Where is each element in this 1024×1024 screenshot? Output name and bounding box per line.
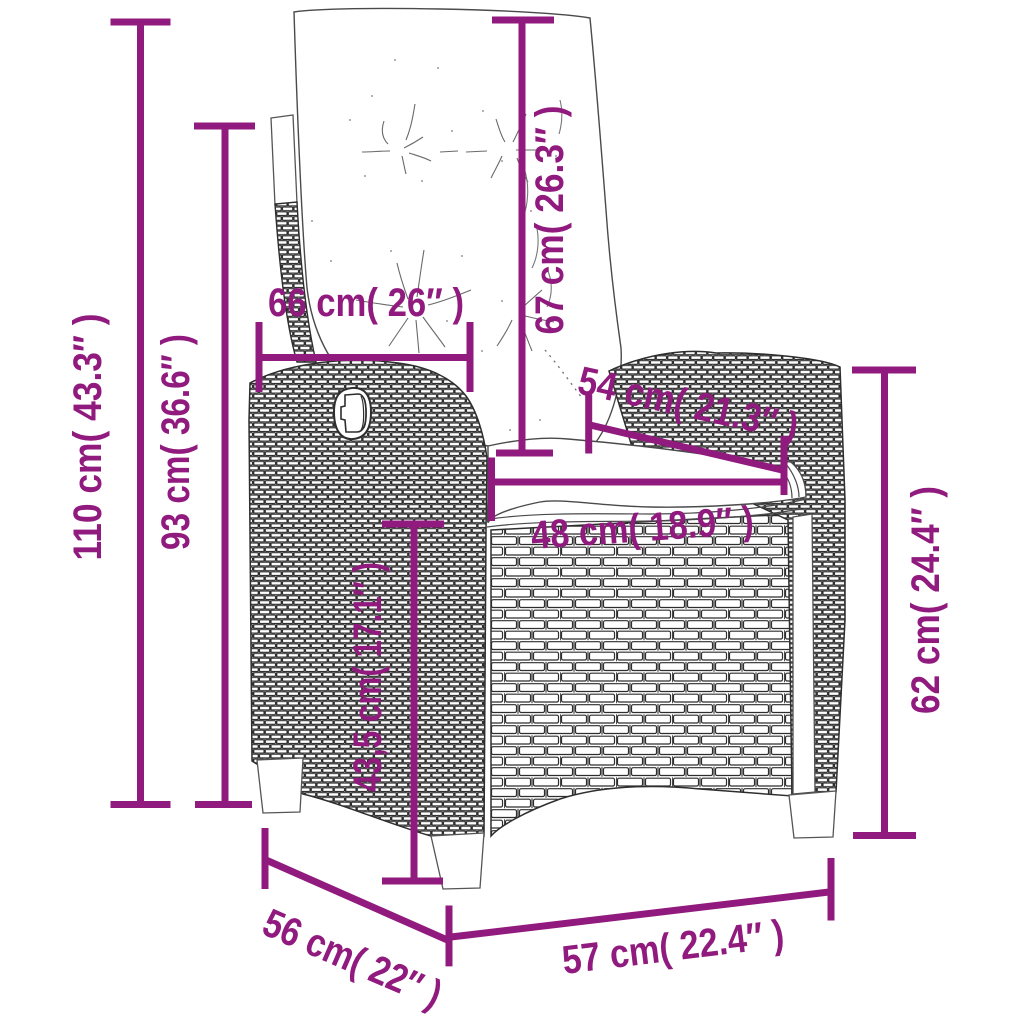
svg-text:43,5 cm( 17.1″ ): 43,5 cm( 17.1″ ): [346, 562, 390, 792]
svg-text:93 cm( 36.6″ ): 93 cm( 36.6″ ): [154, 334, 198, 550]
svg-text:110 cm( 43.3″ ): 110 cm( 43.3″ ): [66, 314, 110, 561]
svg-text:62 cm( 24.4″ ): 62 cm( 24.4″ ): [904, 486, 948, 714]
svg-text:67 cm( 26.3″ ): 67 cm( 26.3″ ): [528, 106, 572, 335]
svg-text:66 cm( 26″ ): 66 cm( 26″ ): [268, 281, 464, 325]
